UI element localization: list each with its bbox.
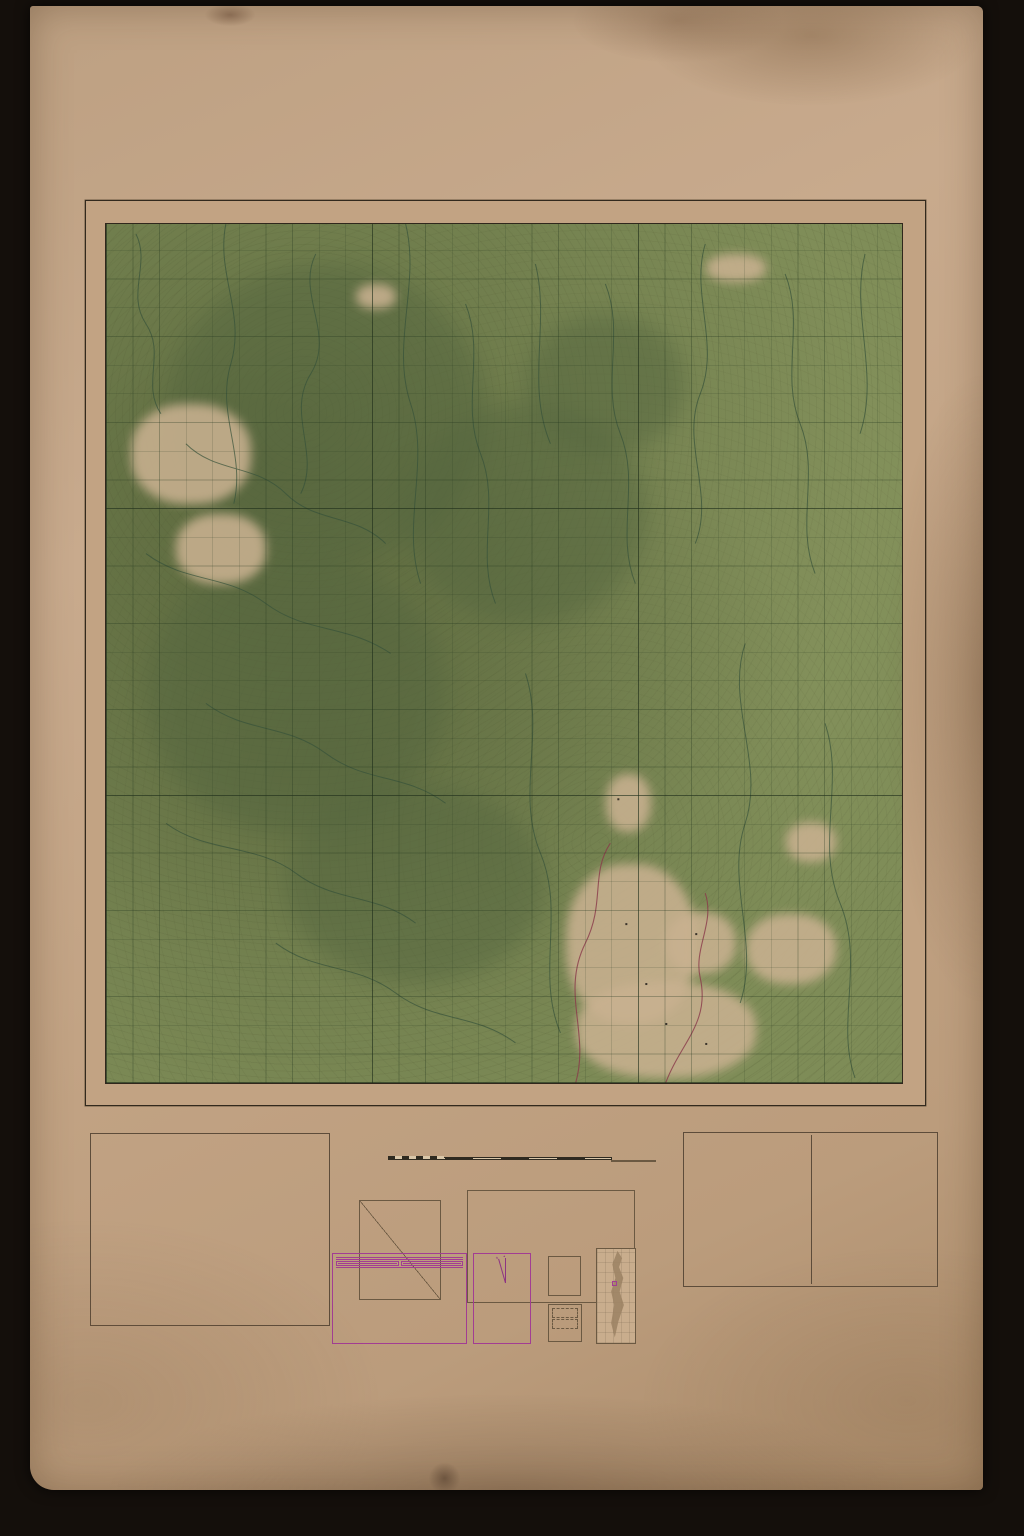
adjoining-sheets-grid bbox=[611, 1160, 656, 1162]
grid-numbers-right bbox=[908, 223, 921, 1084]
sheet-location-marker bbox=[612, 1281, 617, 1286]
grid-numbers-interior-column bbox=[658, 223, 674, 1084]
grid-reference-footer bbox=[336, 1267, 463, 1269]
road-lines bbox=[575, 843, 708, 1084]
magnetic-declination-box bbox=[473, 1253, 531, 1344]
grid-numbers-interior-column bbox=[391, 223, 407, 1084]
north-head bbox=[403, 1263, 462, 1264]
reliability-regions bbox=[550, 1259, 579, 1281]
reliability-diagram bbox=[548, 1256, 581, 1296]
river-lines bbox=[136, 224, 867, 1078]
east-head bbox=[338, 1263, 397, 1264]
map-body bbox=[105, 223, 903, 1084]
photo-strip-outline bbox=[552, 1308, 578, 1318]
glossary-column-right bbox=[811, 1135, 935, 1284]
contour-notes bbox=[352, 1355, 782, 1358]
glossary-table bbox=[683, 1132, 938, 1287]
photo-strip-outline bbox=[552, 1319, 578, 1329]
scale-bar-subdivisions bbox=[388, 1156, 444, 1159]
rivers-and-roads-layer bbox=[106, 224, 902, 1084]
photo-index-box bbox=[548, 1304, 582, 1342]
grid-reference-columns bbox=[336, 1261, 463, 1266]
grid-reference-instructions bbox=[332, 1253, 467, 1344]
grid-north-line bbox=[505, 1258, 506, 1283]
north-column bbox=[401, 1261, 464, 1266]
malaya-index-map bbox=[596, 1248, 636, 1344]
scanned-map-sheet bbox=[0, 0, 1024, 1536]
declination-diagram bbox=[482, 1257, 522, 1283]
reference-legend bbox=[90, 1133, 330, 1326]
map-frame bbox=[85, 200, 926, 1106]
adjoining-sheets-index bbox=[605, 1158, 661, 1232]
grid-numbers-left bbox=[90, 223, 103, 1084]
series-block bbox=[758, 146, 936, 161]
glossary-column-left bbox=[687, 1135, 806, 1284]
vegetation-natural-column bbox=[472, 1194, 548, 1195]
scale-bar bbox=[388, 1157, 612, 1163]
east-column bbox=[336, 1261, 399, 1266]
grid-reference-point-row bbox=[336, 1257, 463, 1260]
peninsula-outline bbox=[601, 1251, 631, 1341]
